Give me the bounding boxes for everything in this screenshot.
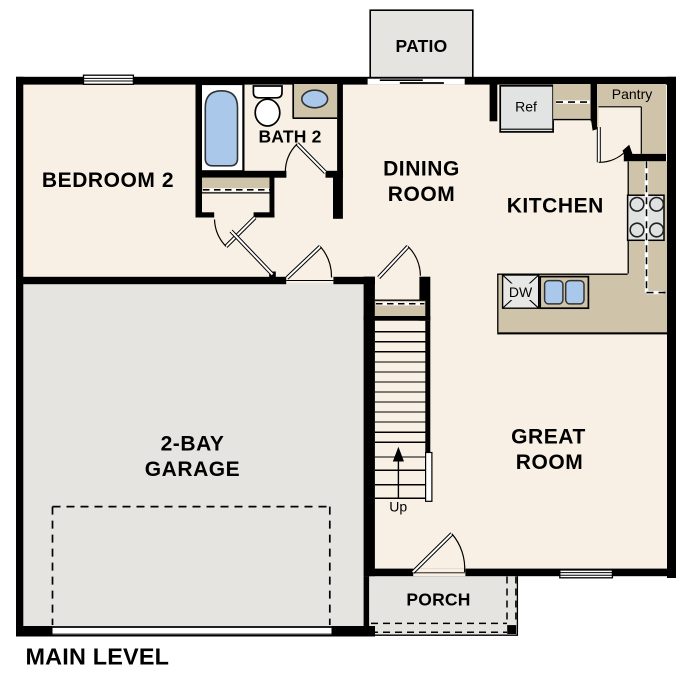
svg-text:2-BAY: 2-BAY	[161, 433, 225, 456]
svg-text:ROOM: ROOM	[388, 183, 456, 206]
svg-text:Ref: Ref	[515, 99, 537, 115]
svg-text:GARAGE: GARAGE	[145, 458, 240, 481]
svg-text:KITCHEN: KITCHEN	[507, 195, 604, 218]
svg-text:GREAT: GREAT	[511, 426, 586, 449]
svg-text:Pantry: Pantry	[612, 86, 652, 102]
svg-text:BATH 2: BATH 2	[258, 127, 321, 147]
svg-text:PORCH: PORCH	[406, 590, 470, 610]
svg-text:DINING: DINING	[383, 158, 460, 181]
svg-text:BEDROOM 2: BEDROOM 2	[42, 169, 174, 192]
svg-text:MAIN LEVEL: MAIN LEVEL	[26, 644, 170, 670]
svg-text:Up: Up	[389, 499, 407, 515]
svg-text:DW: DW	[509, 284, 533, 300]
svg-text:PATIO: PATIO	[396, 36, 448, 56]
svg-text:ROOM: ROOM	[516, 451, 584, 474]
